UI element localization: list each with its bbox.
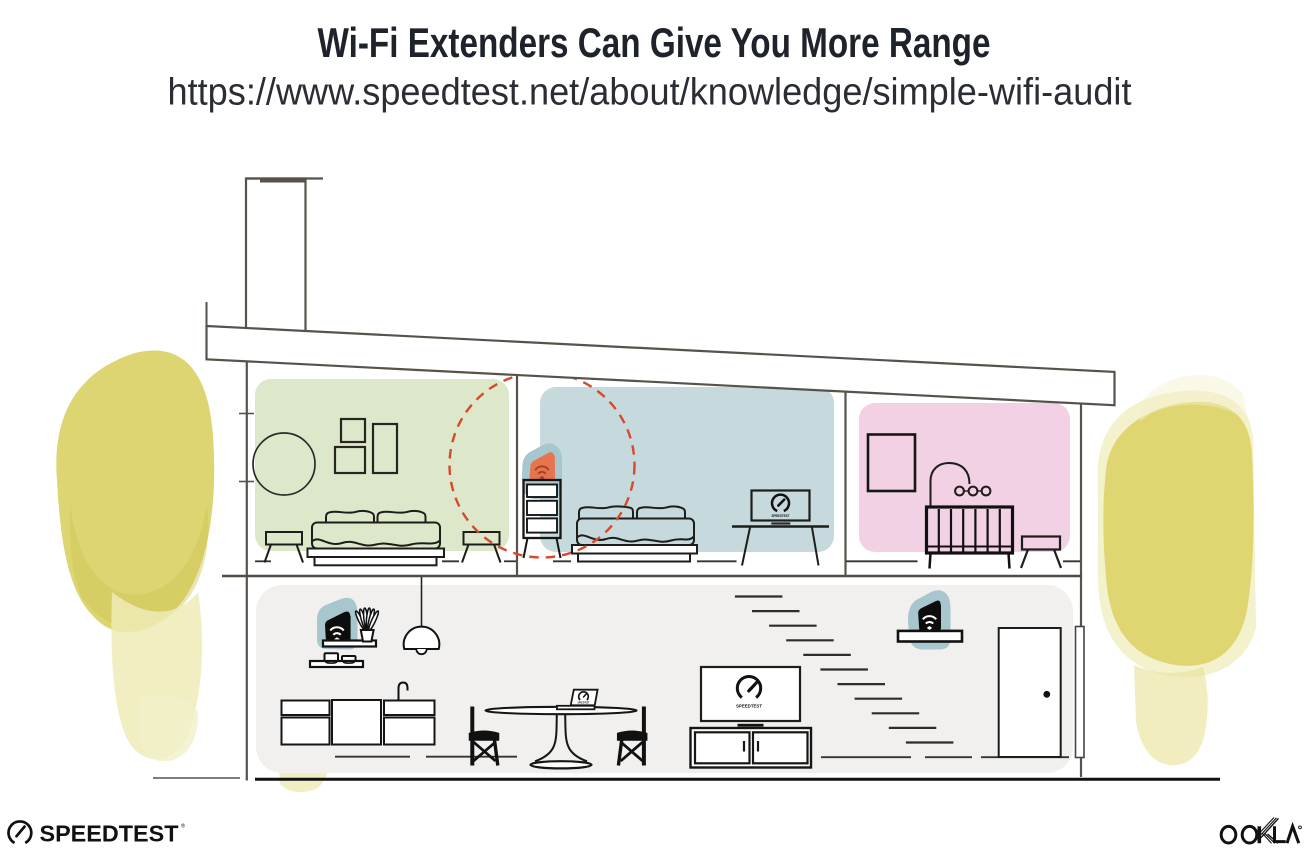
svg-text:SPEEDTEST: SPEEDTEST bbox=[40, 821, 180, 847]
svg-text:Wi-Fi Extenders Can Give You M: Wi-Fi Extenders Can Give You More Range bbox=[318, 19, 991, 66]
svg-text:https://www.speedtest.net/abou: https://www.speedtest.net/about/knowledg… bbox=[168, 72, 1132, 114]
svg-text:®: ® bbox=[181, 823, 185, 830]
svg-text:SPEEDTEST: SPEEDTEST bbox=[736, 704, 762, 709]
svg-text:SPEEDTEST: SPEEDTEST bbox=[578, 703, 591, 705]
svg-text:SPEEDTEST: SPEEDTEST bbox=[772, 514, 791, 518]
